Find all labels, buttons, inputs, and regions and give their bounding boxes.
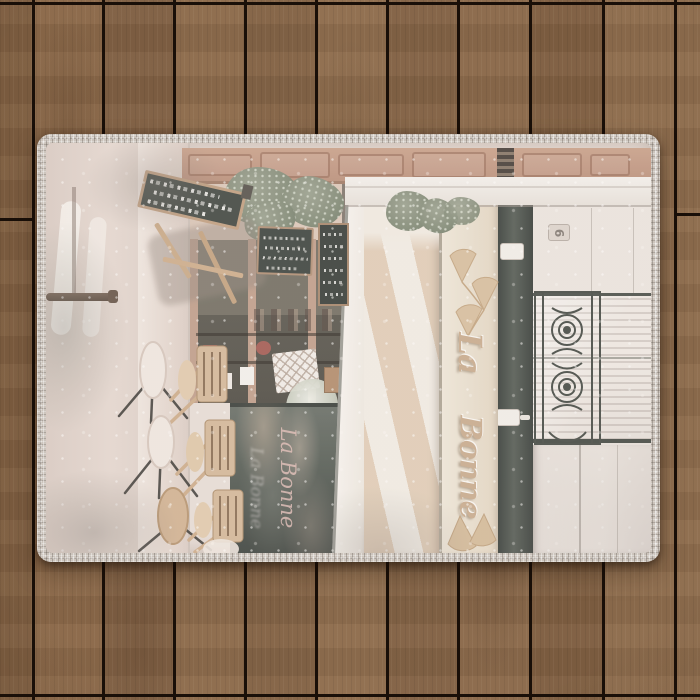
vintage-grunge-overlay <box>46 143 651 553</box>
product-scene: La Bonne La Bonne 6 <box>0 0 700 700</box>
cafe-photo-print: La Bonne La Bonne 6 <box>46 143 651 553</box>
outdoor-rug-product[interactable]: La Bonne La Bonne 6 <box>37 134 660 562</box>
